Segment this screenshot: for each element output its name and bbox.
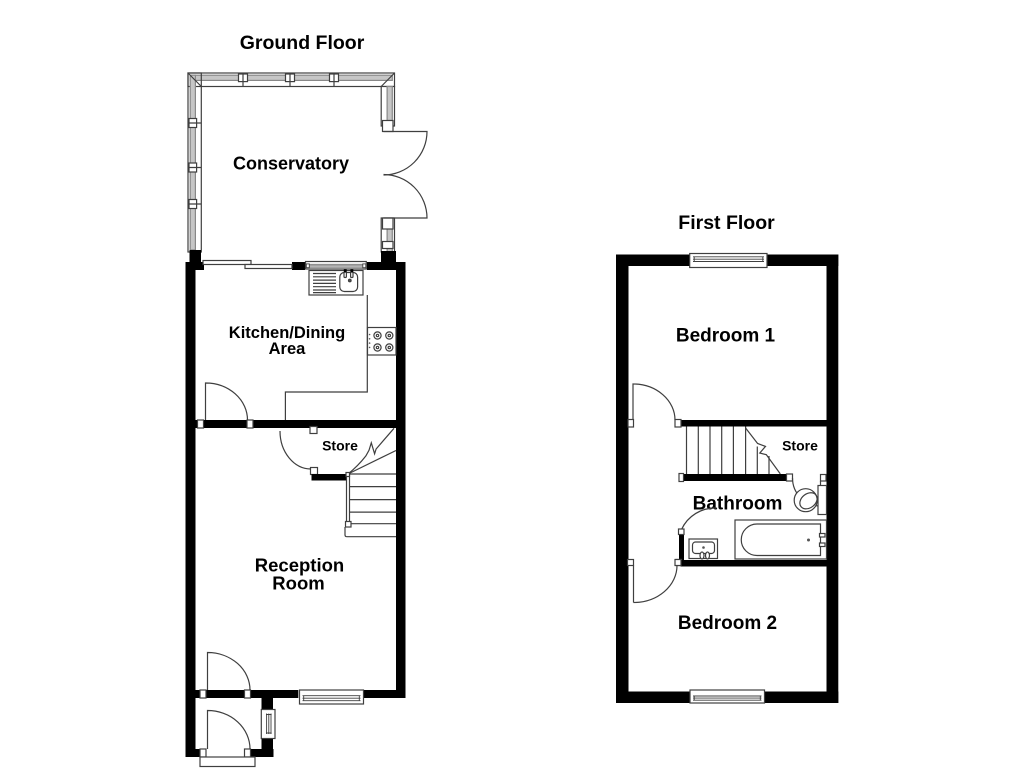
svg-text:Bedroom 1: Bedroom 1	[676, 326, 776, 347]
svg-text:Bathroom: Bathroom	[693, 494, 783, 515]
svg-text:First Floor: First Floor	[678, 212, 775, 234]
svg-text:Store: Store	[322, 438, 358, 454]
svg-text:Store: Store	[782, 438, 818, 454]
svg-text:Conservatory: Conservatory	[233, 154, 349, 174]
svg-text:Ground Floor: Ground Floor	[240, 32, 365, 54]
svg-text:Room: Room	[272, 573, 324, 594]
svg-text:Area: Area	[269, 340, 307, 358]
svg-text:Bedroom 2: Bedroom 2	[678, 613, 777, 634]
